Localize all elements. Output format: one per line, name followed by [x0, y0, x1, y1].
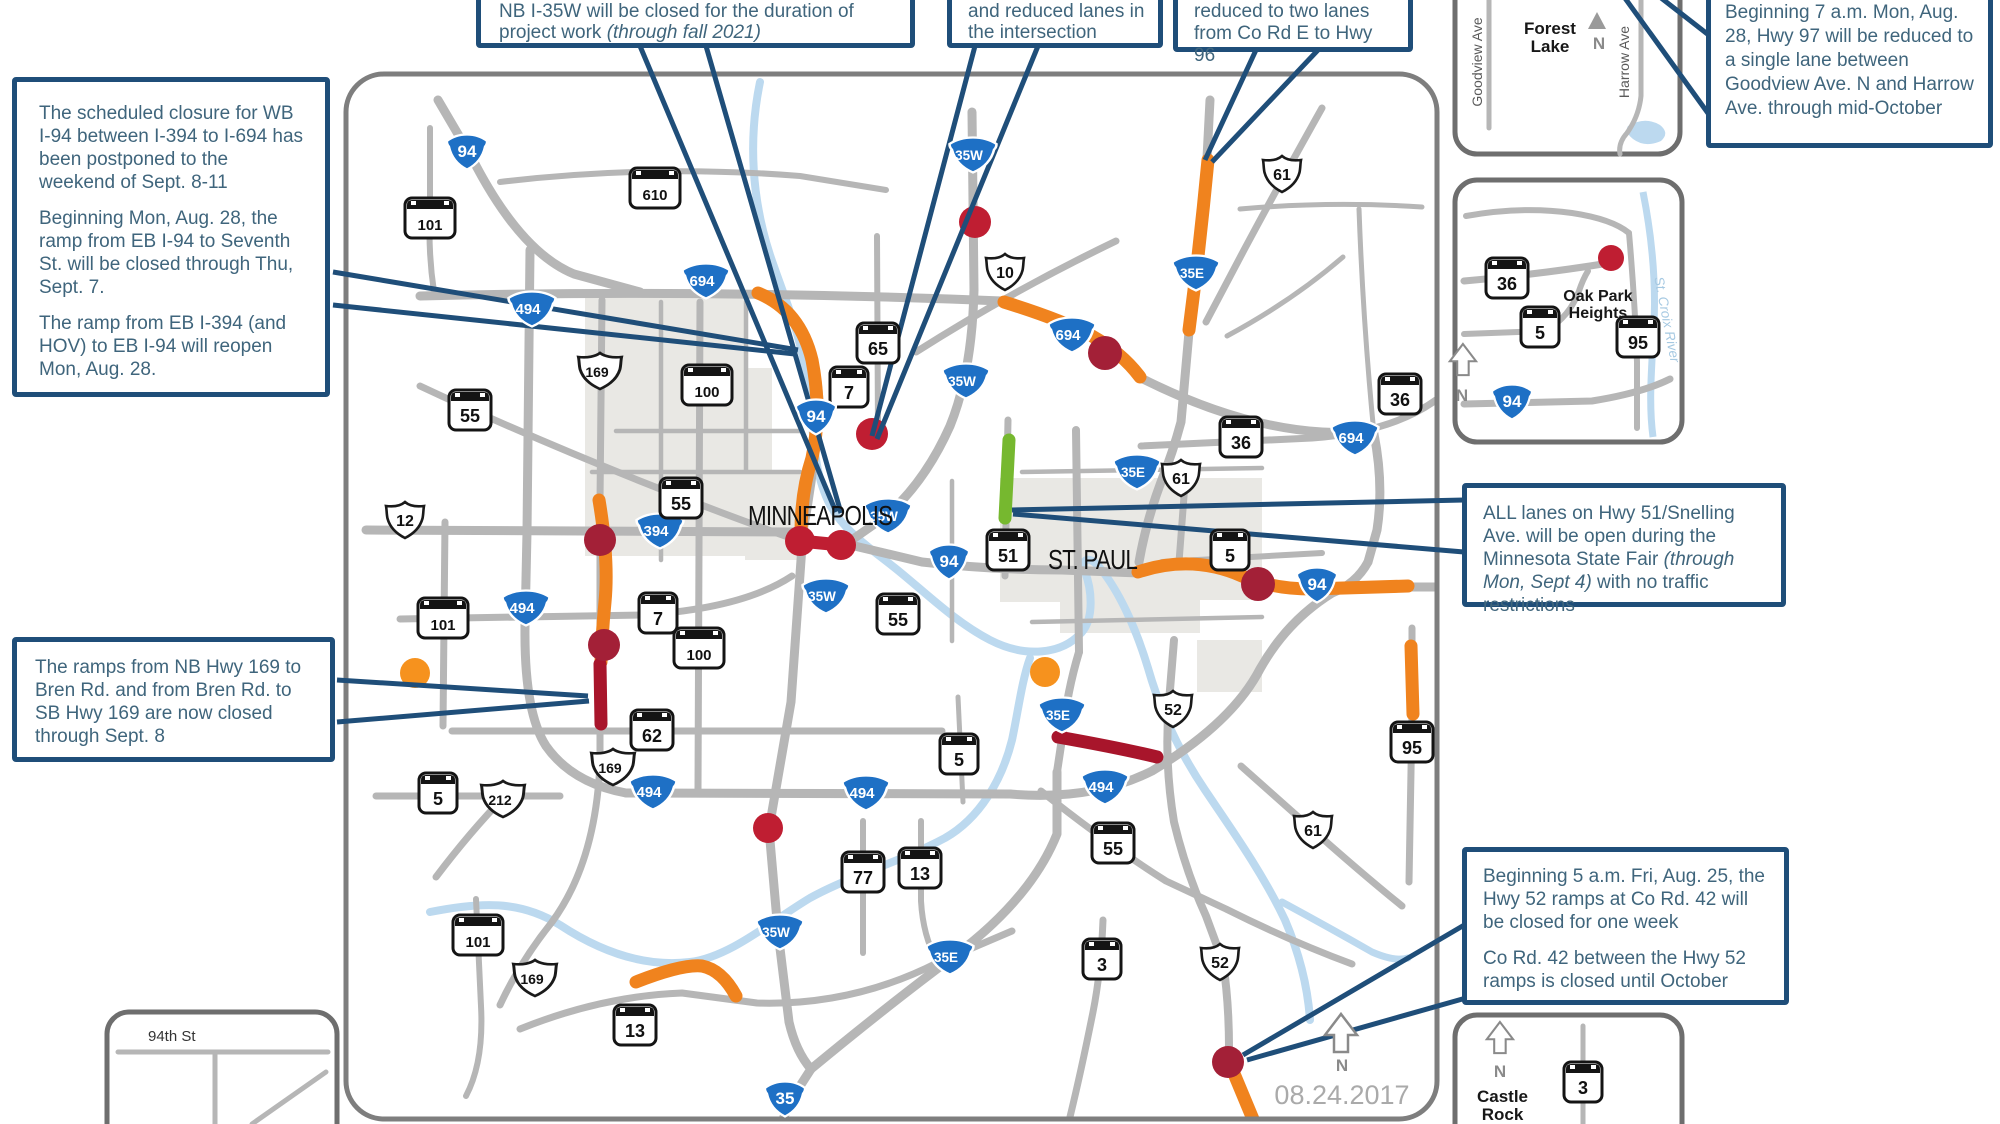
- svg-text:95: 95: [1402, 738, 1422, 758]
- highway-shield: 5: [419, 773, 457, 813]
- svg-text:5: 5: [433, 789, 443, 809]
- construction-segment: [1411, 646, 1413, 714]
- road: [366, 530, 802, 532]
- highway-shield: 55: [449, 390, 491, 430]
- closure-marker: [1088, 336, 1122, 370]
- closure-marker: [1212, 1046, 1244, 1078]
- inset-title-forest-lake: Forest Lake: [1505, 20, 1595, 57]
- highway-shield: 55: [877, 594, 919, 634]
- svg-text:61: 61: [1273, 167, 1291, 184]
- svg-text:35W: 35W: [762, 925, 790, 940]
- svg-text:7: 7: [844, 383, 854, 403]
- svg-text:94: 94: [940, 552, 959, 571]
- highway-shield: 55: [1092, 823, 1134, 863]
- svg-text:55: 55: [1103, 839, 1123, 859]
- svg-text:94: 94: [1503, 392, 1522, 411]
- callout-paragraph: Co Rd. 42 between the Hwy 52 ramps is cl…: [1483, 947, 1774, 993]
- highway-shield: 7: [639, 593, 677, 633]
- callout-paragraph: Beginning Mon, Aug. 28, the ramp from EB…: [39, 207, 307, 299]
- svg-text:169: 169: [598, 760, 622, 776]
- city-label-st-paul: ST. PAUL: [1048, 544, 1137, 576]
- svg-text:35E: 35E: [1121, 465, 1145, 480]
- svg-text:394: 394: [643, 523, 669, 540]
- svg-text:169: 169: [585, 364, 609, 380]
- svg-text:94: 94: [807, 407, 826, 426]
- svg-text:35: 35: [776, 1089, 795, 1108]
- svg-text:212: 212: [488, 792, 512, 808]
- highway-shield: 77: [842, 852, 884, 892]
- svg-text:55: 55: [460, 406, 480, 426]
- callout-hwy97-single-lane: Beginning 7 a.m. Mon, Aug. 28, Hwy 97 wi…: [1706, 0, 1993, 148]
- svg-text:35W: 35W: [948, 374, 976, 389]
- svg-text:5: 5: [1225, 546, 1235, 566]
- svg-text:101: 101: [417, 217, 442, 234]
- svg-text:694: 694: [689, 273, 715, 290]
- callout-paragraph: The ramp from EB I-394 (and HOV) to EB I…: [39, 312, 307, 381]
- road-label-harrow-ave: Harrow Ave: [1616, 7, 1632, 117]
- highway-shield: 36: [1220, 417, 1262, 457]
- traffic-impacts-map-page: 946101016944941691005576535W1069435E6135…: [0, 0, 2000, 1124]
- north-label-main: N: [1330, 1056, 1354, 1076]
- closure-marker: [1030, 657, 1060, 687]
- svg-text:13: 13: [910, 864, 930, 884]
- highway-shield: 101: [453, 915, 503, 955]
- svg-text:494: 494: [636, 784, 662, 801]
- svg-text:65: 65: [868, 339, 888, 359]
- svg-text:694: 694: [1055, 327, 1081, 344]
- svg-text:35W: 35W: [808, 589, 836, 604]
- highway-shield: 36: [1486, 258, 1528, 298]
- svg-text:94: 94: [1308, 575, 1327, 594]
- svg-text:169: 169: [520, 971, 544, 987]
- inset-box: [107, 1012, 337, 1124]
- svg-text:52: 52: [1211, 955, 1229, 972]
- svg-text:94: 94: [458, 142, 477, 161]
- road-label-94th-st: 94th St: [148, 1028, 196, 1045]
- callout-text: and reduced lanes in the intersection: [968, 1, 1144, 43]
- svg-text:494: 494: [849, 785, 875, 802]
- highway-shield: 13: [614, 1005, 656, 1045]
- closure-marker: [753, 813, 783, 843]
- callout-reduced-lanes-intersection: and reduced lanes in the intersection: [947, 0, 1163, 48]
- highway-shield: 5: [940, 734, 978, 774]
- road: [1076, 430, 1079, 652]
- svg-text:62: 62: [642, 726, 662, 746]
- callout-hwy51-state-fair: ALL lanes on Hwy 51/Snelling Ave. will b…: [1462, 483, 1786, 607]
- callout-hwy52-co-rd-42: Beginning 5 a.m. Fri, Aug. 25, the Hwy 5…: [1462, 847, 1789, 1005]
- callout-paragraph: The scheduled closure for WB I-94 betwee…: [39, 102, 307, 194]
- highway-shield: 95: [1617, 317, 1659, 357]
- svg-text:61: 61: [1172, 471, 1190, 488]
- closure-marker: [826, 530, 856, 560]
- svg-text:101: 101: [430, 617, 455, 634]
- highway-shield: 7: [830, 367, 868, 407]
- construction-segment: [600, 664, 601, 724]
- svg-text:35E: 35E: [1180, 266, 1204, 281]
- highway-shield: 3: [1564, 1062, 1602, 1102]
- highway-shield: 5: [1211, 530, 1249, 570]
- closure-marker: [588, 629, 620, 661]
- highway-shield: 65: [857, 323, 899, 363]
- highway-shield: 51: [987, 530, 1029, 570]
- callout-hwy169-bren-rd-ramps: The ramps from NB Hwy 169 to Bren Rd. an…: [12, 637, 335, 762]
- callout-wb-i94-closure: The scheduled closure for WB I-94 betwee…: [12, 77, 330, 397]
- inset-title-oak-park-heights: Oak Park Heights: [1548, 288, 1648, 323]
- svg-text:3: 3: [1578, 1078, 1588, 1098]
- svg-text:5: 5: [954, 750, 964, 770]
- closure-marker: [1241, 567, 1275, 601]
- svg-text:35W: 35W: [955, 148, 983, 163]
- north-label-castle-rock: N: [1488, 1062, 1512, 1082]
- svg-text:55: 55: [671, 494, 691, 514]
- callout-paragraph: Beginning 5 a.m. Fri, Aug. 25, the Hwy 5…: [1483, 865, 1774, 934]
- closure-marker: [1598, 245, 1624, 271]
- svg-text:51: 51: [998, 546, 1018, 566]
- svg-text:100: 100: [686, 647, 711, 664]
- svg-text:7: 7: [653, 609, 663, 629]
- svg-text:35E: 35E: [1046, 708, 1070, 723]
- road-label-goodview-ave: Goodview Ave: [1469, 7, 1485, 117]
- svg-text:494: 494: [1088, 779, 1114, 796]
- map-date: 08.24.2017: [1262, 1080, 1422, 1111]
- callout-text-italic: (through fall 2021): [607, 22, 761, 43]
- closure-marker: [584, 524, 616, 556]
- construction-segment: [1005, 440, 1009, 518]
- svg-text:36: 36: [1497, 274, 1517, 294]
- highway-shield: 610: [630, 168, 680, 208]
- svg-text:100: 100: [694, 384, 719, 401]
- svg-text:52: 52: [1164, 702, 1182, 719]
- highway-shield: 95: [1391, 722, 1433, 762]
- highway-shield: 100: [682, 365, 732, 405]
- svg-text:36: 36: [1231, 433, 1251, 453]
- highway-shield: 62: [631, 710, 673, 750]
- svg-text:3: 3: [1097, 955, 1107, 975]
- callout-reduced-two-lanes: reduced to two lanes from Co Rd E to Hwy…: [1173, 0, 1413, 52]
- callout-nb-35w-closed: NB I-35W will be closed for the duration…: [476, 0, 915, 48]
- svg-text:77: 77: [853, 868, 873, 888]
- svg-text:55: 55: [888, 610, 908, 630]
- highway-shield: 55: [660, 478, 702, 518]
- svg-text:13: 13: [625, 1021, 645, 1041]
- highway-shield: 3: [1083, 939, 1121, 979]
- svg-text:35E: 35E: [934, 950, 958, 965]
- city-label-minneapolis: MINNEAPOLIS: [748, 500, 892, 532]
- highway-shield: 101: [418, 598, 468, 638]
- svg-text:10: 10: [996, 265, 1014, 282]
- callout-text: The ramps from NB Hwy 169 to Bren Rd. an…: [35, 657, 301, 747]
- road: [626, 793, 1010, 794]
- callout-text: Beginning 7 a.m. Mon, Aug. 28, Hwy 97 wi…: [1725, 2, 1974, 119]
- svg-text:694: 694: [1338, 430, 1364, 447]
- svg-text:36: 36: [1390, 390, 1410, 410]
- highway-shield: 100: [674, 628, 724, 668]
- inset-title-castle-rock: Castle Rock: [1455, 1088, 1550, 1124]
- svg-text:494: 494: [509, 600, 535, 617]
- svg-text:494: 494: [515, 301, 541, 318]
- north-label-oak-park: N: [1450, 386, 1474, 406]
- svg-text:101: 101: [465, 934, 490, 951]
- svg-text:610: 610: [642, 187, 667, 204]
- svg-text:95: 95: [1628, 333, 1648, 353]
- highway-shield: 101: [405, 198, 455, 238]
- svg-text:12: 12: [396, 513, 414, 530]
- highway-shield: 13: [899, 848, 941, 888]
- highway-shield: 36: [1379, 374, 1421, 414]
- svg-text:5: 5: [1535, 323, 1545, 343]
- svg-text:61: 61: [1304, 823, 1322, 840]
